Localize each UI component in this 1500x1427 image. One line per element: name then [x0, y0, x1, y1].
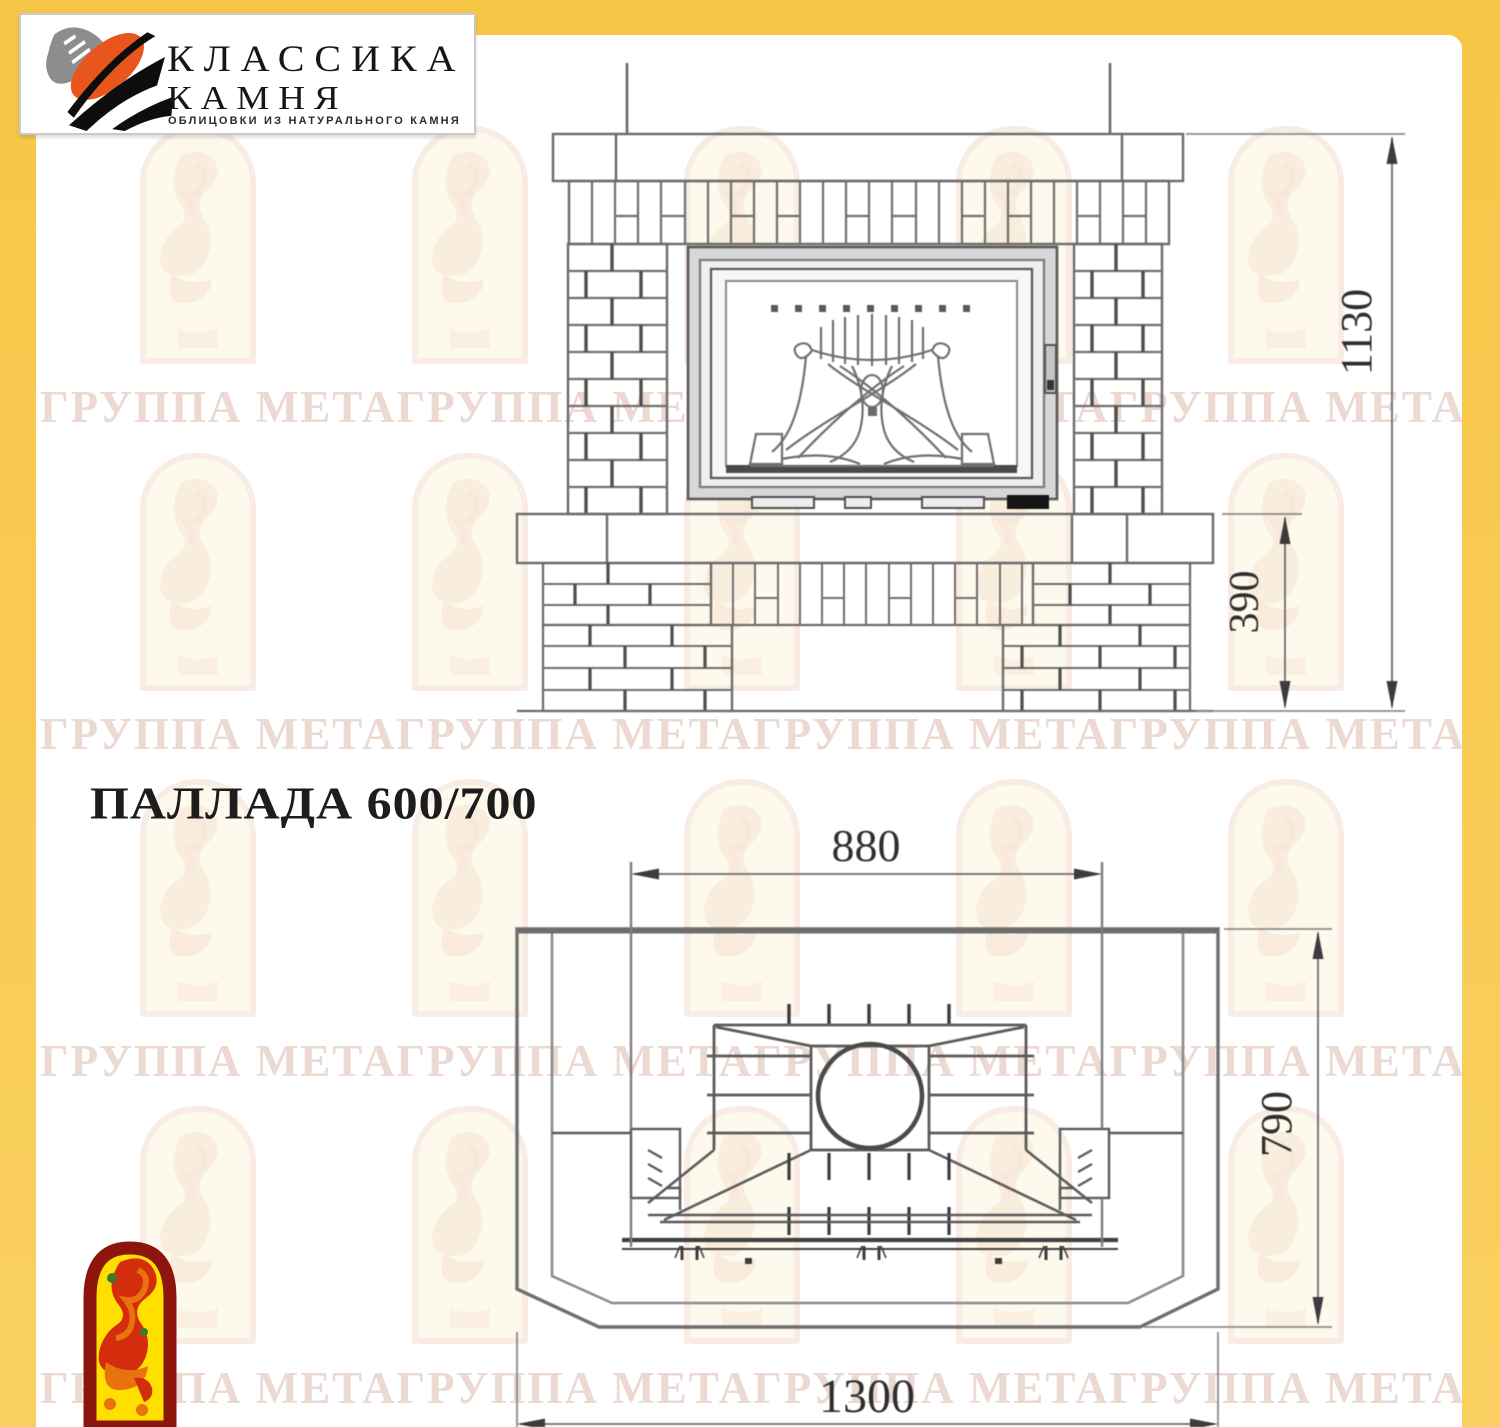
svg-text:1130: 1130: [1332, 289, 1381, 375]
svg-text:790: 790: [1252, 1091, 1301, 1157]
svg-text:880: 880: [832, 820, 901, 871]
svg-text:390: 390: [1222, 571, 1268, 634]
svg-text:1300: 1300: [819, 1370, 915, 1423]
